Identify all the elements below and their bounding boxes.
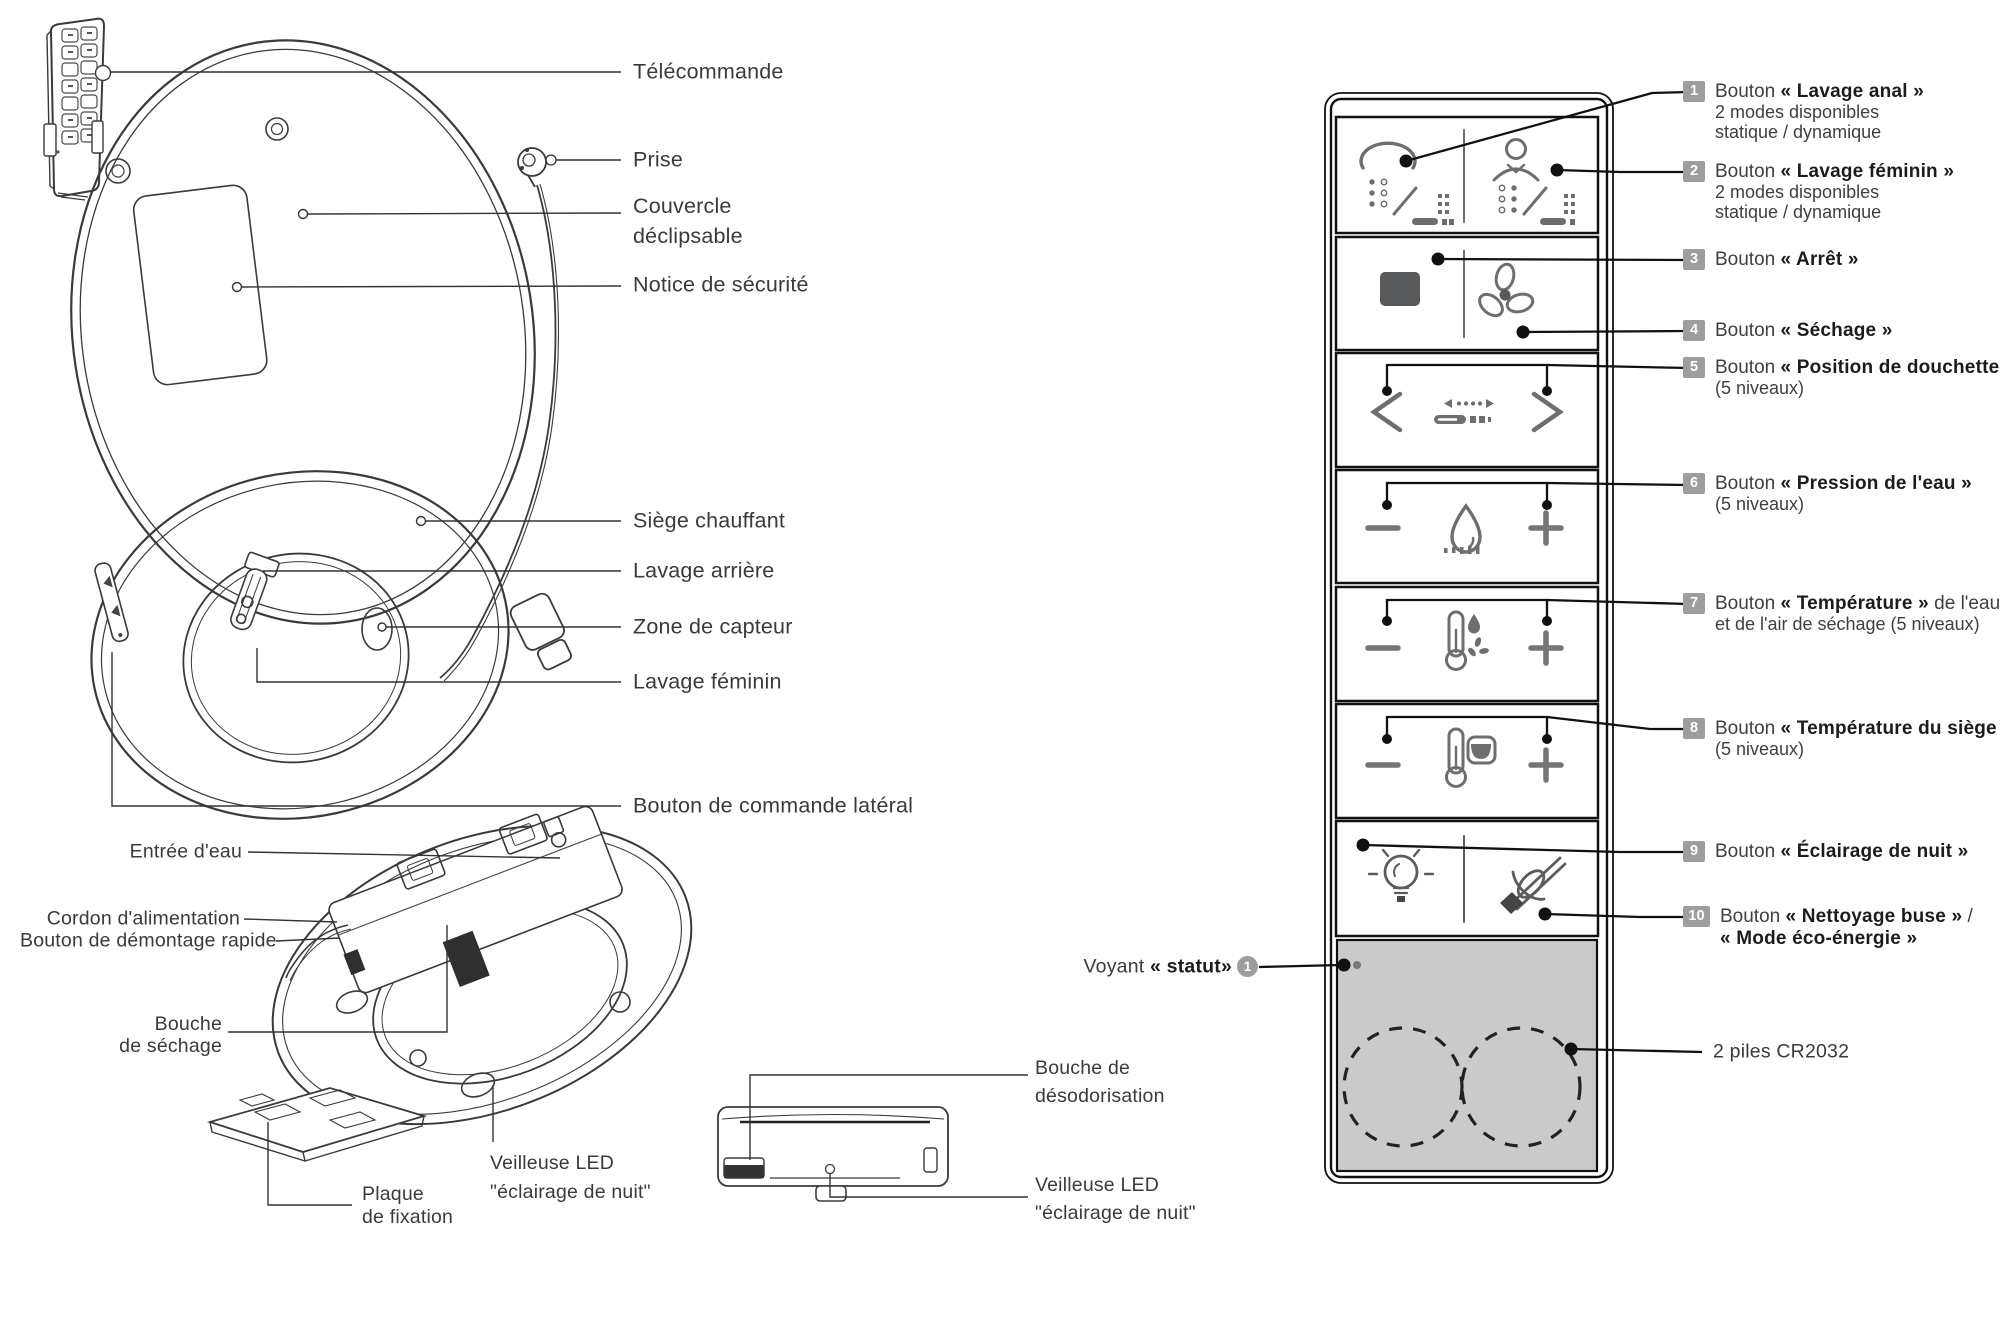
- label-demontage: Bouton de démontage rapide: [20, 930, 272, 953]
- label-bouche-sechage: Bouche de séchage: [72, 1013, 222, 1057]
- label-entree-eau: Entrée d'eau: [42, 841, 242, 864]
- panel-label-row-8: 8 Bouton « Température du siège » (5 niv…: [1683, 718, 2000, 759]
- stop-icon: [1380, 272, 1420, 306]
- button-cell-stop-dry: [1336, 237, 1598, 350]
- label-telecommande: Télécommande: [633, 60, 784, 85]
- panel-label-row-5: 5 Bouton « Position de douchette » (5 ni…: [1683, 357, 2000, 398]
- panel-label-row-1: 1 Bouton « Lavage anal » 2 modes disponi…: [1683, 81, 1924, 142]
- step-badge-1: 1: [1683, 81, 1705, 102]
- button-cell-light-clean: [1336, 821, 1598, 936]
- panel-label-row-3: 3 Bouton « Arrêt »: [1683, 249, 1859, 270]
- panel-label-row-9: 9 Bouton « Éclairage de nuit »: [1683, 841, 1968, 862]
- step-badge-10: 10: [1683, 906, 1710, 927]
- step-badge-9: 9: [1683, 841, 1705, 862]
- step-badge-4: 4: [1683, 320, 1705, 341]
- label-lavage-feminin: Lavage féminin: [633, 670, 782, 695]
- step-badge-3: 3: [1683, 249, 1705, 270]
- power-cord-drawing: [440, 148, 558, 681]
- label-cordon: Cordon d'alimentation: [0, 908, 240, 931]
- button-cell-temperature: [1336, 587, 1598, 701]
- night-light-tab: [816, 1186, 846, 1201]
- control-panel-drawing: [1259, 92, 1702, 1183]
- button-cell-seat-temperature: [1336, 704, 1598, 818]
- label-zone-capteur: Zone de capteur: [633, 615, 793, 640]
- label-bouton-lateral: Bouton de commande latéral: [633, 794, 913, 819]
- callout-lines-main: [110, 72, 621, 806]
- step-badge-5: 5: [1683, 357, 1705, 378]
- voyant-badge-1: 1: [1237, 956, 1258, 977]
- label-couvercle: Couvercle déclipsable: [633, 191, 743, 251]
- label-lavage-arriere: Lavage arrière: [633, 559, 774, 584]
- battery-compartment: [1337, 940, 1597, 1171]
- panel-label-row-7: 7 Bouton « Température » de l'eau et de …: [1683, 593, 2000, 634]
- panel-label-row-2: 2 Bouton « Lavage féminin » 2 modes disp…: [1683, 161, 1954, 222]
- label-plaque-fixation: Plaque de fixation: [362, 1183, 453, 1229]
- label-siege-chauffant: Siège chauffant: [633, 509, 785, 534]
- fixing-plate-drawing: [210, 1088, 424, 1161]
- toilet-seat-drawing: [59, 148, 559, 857]
- remote-button-circle: [96, 66, 111, 81]
- status-led-secondary: [1353, 961, 1361, 969]
- step-badge-6: 6: [1683, 473, 1705, 494]
- safety-notice-plate: [132, 184, 268, 386]
- label-notice: Notice de sécurité: [633, 273, 809, 298]
- panel-label-row-10: 10 Bouton « Nettoyage buse » / « Mode éc…: [1683, 906, 1973, 950]
- label-veilleuse-underside: Veilleuse LED "éclairage de nuit": [490, 1149, 651, 1207]
- step-badge-7: 7: [1683, 593, 1705, 614]
- label-bouche-desodorisation: Bouche de désodorisation: [1035, 1054, 1165, 1110]
- label-veilleuse-side: Veilleuse LED "éclairage de nuit": [1035, 1171, 1196, 1227]
- panel-label-row-6: 6 Bouton « Pression de l'eau » (5 niveau…: [1683, 473, 1972, 514]
- panel-label-row-4: 4 Bouton « Séchage »: [1683, 320, 1893, 341]
- step-badge-8: 8: [1683, 718, 1705, 739]
- label-prise: Prise: [633, 148, 683, 173]
- side-view-drawing: [718, 1107, 948, 1201]
- label-piles: 2 piles CR2032: [1713, 1041, 1849, 1064]
- step-badge-2: 2: [1683, 161, 1705, 182]
- deodorizing-vent: [724, 1165, 764, 1178]
- side-button-drawing: [93, 561, 129, 642]
- label-voyant-statut: Voyant « statut»: [1032, 956, 1232, 979]
